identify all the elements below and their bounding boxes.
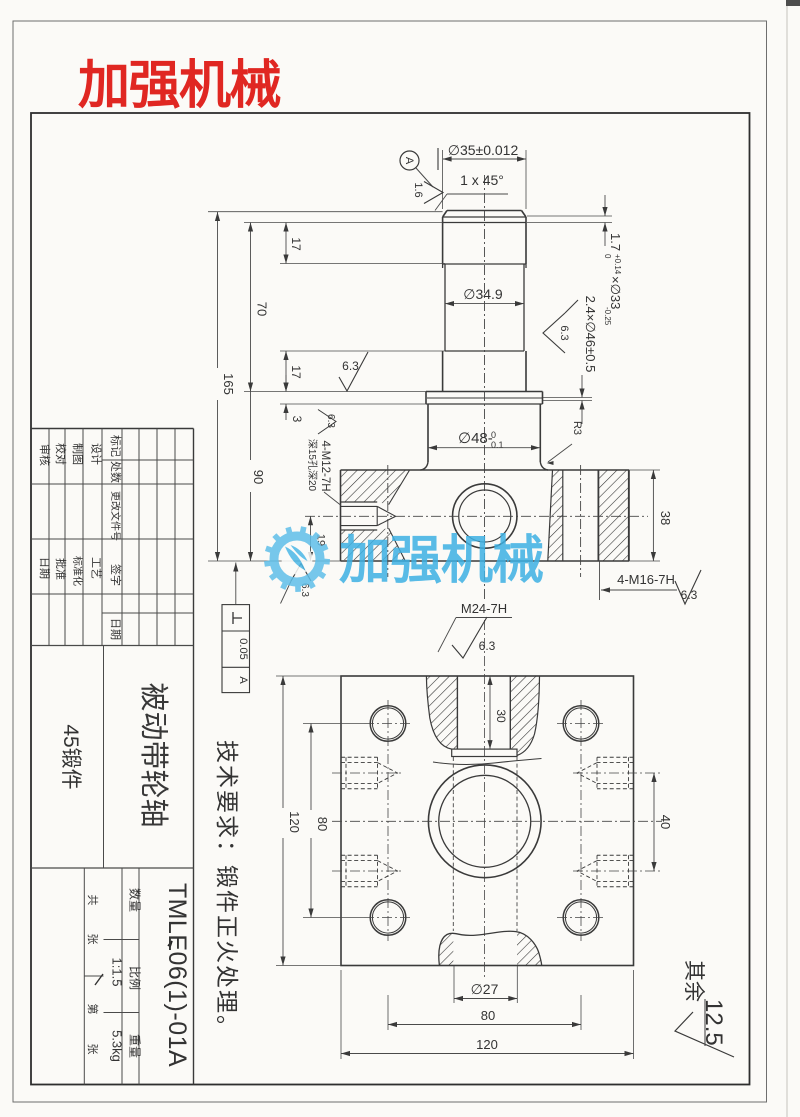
svg-text:1:1.5: 1:1.5: [110, 958, 125, 987]
svg-text:校对: 校对: [54, 443, 68, 465]
svg-text:共: 共: [86, 895, 99, 906]
svg-text:A: A: [403, 157, 415, 165]
svg-text:6.3: 6.3: [342, 359, 359, 373]
svg-text:标准化: 标准化: [71, 556, 84, 586]
svg-text:4-M16-7H: 4-M16-7H: [617, 572, 675, 587]
svg-text:90: 90: [251, 470, 266, 484]
svg-text:重量: 重量: [128, 1034, 142, 1058]
svg-text:1 x 45°: 1 x 45°: [460, 172, 504, 188]
svg-text:4-M12-7H: 4-M12-7H: [319, 440, 331, 491]
svg-text:0.1: 0.1: [491, 440, 504, 450]
svg-text:其余: 其余: [682, 960, 705, 1002]
svg-text:深15孔深20: 深15孔深20: [306, 439, 318, 492]
svg-text:制图: 制图: [71, 443, 84, 465]
svg-text:45锻件: 45锻件: [59, 724, 82, 789]
svg-text:5.3kg: 5.3kg: [110, 1030, 125, 1062]
svg-text:A: A: [237, 676, 249, 684]
svg-text:批准: 批准: [54, 558, 68, 580]
svg-text:3: 3: [290, 416, 304, 423]
svg-text:-0.25: -0.25: [603, 307, 612, 326]
svg-text:2.4×∅46±0.5: 2.4×∅46±0.5: [583, 296, 598, 373]
svg-text:比例: 比例: [128, 966, 142, 990]
svg-text:审核: 审核: [38, 444, 52, 466]
svg-text:R3: R3: [571, 421, 583, 435]
svg-text:6.3: 6.3: [681, 588, 698, 602]
svg-text:0: 0: [603, 254, 612, 259]
svg-text:被动带轮轴: 被动带轮轴: [137, 682, 170, 827]
svg-text:38: 38: [658, 511, 673, 525]
svg-text:0.05: 0.05: [237, 638, 249, 659]
svg-text:+0.14: +0.14: [613, 254, 622, 275]
svg-text:120: 120: [287, 811, 302, 833]
svg-text:M24-7H: M24-7H: [461, 601, 507, 616]
svg-text:张: 张: [86, 1044, 99, 1055]
svg-text:×∅33: ×∅33: [608, 276, 623, 309]
svg-text:6.3: 6.3: [479, 639, 496, 653]
svg-text:6.3: 6.3: [558, 325, 570, 340]
svg-text:TMLE06(1)-01A: TMLE06(1)-01A: [163, 883, 191, 1067]
svg-text:1.7: 1.7: [608, 233, 623, 251]
svg-text:17: 17: [289, 365, 303, 379]
svg-text:张: 张: [86, 934, 99, 945]
svg-text:处数: 处数: [109, 461, 122, 483]
svg-text:165: 165: [221, 373, 236, 395]
svg-text:签字: 签字: [109, 564, 123, 586]
svg-text:40: 40: [658, 815, 673, 829]
svg-text:数量: 数量: [128, 888, 143, 912]
svg-text:17: 17: [289, 237, 303, 251]
svg-text:工艺: 工艺: [90, 557, 103, 579]
svg-text:设计: 设计: [90, 443, 103, 465]
svg-text:更改文件号: 更改文件号: [109, 491, 122, 541]
svg-text:∅27: ∅27: [471, 981, 499, 997]
svg-text:120: 120: [476, 1037, 498, 1052]
svg-text:日期: 日期: [109, 618, 122, 640]
svg-text:∅48-: ∅48-: [458, 430, 493, 447]
svg-text:0: 0: [491, 430, 496, 440]
svg-text:6.3: 6.3: [325, 414, 336, 428]
svg-text:12.5: 12.5: [700, 999, 727, 1046]
svg-text:加强机械: 加强机械: [78, 57, 281, 115]
svg-text:∅34.9: ∅34.9: [463, 286, 503, 302]
svg-text:∅35±0.012: ∅35±0.012: [448, 142, 519, 158]
svg-text:日期: 日期: [38, 557, 51, 579]
svg-text:80: 80: [481, 1008, 495, 1023]
svg-text:30: 30: [494, 709, 508, 723]
svg-text:第: 第: [86, 1004, 100, 1015]
svg-text:标记: 标记: [109, 435, 123, 457]
svg-text:技术要求：锻件正火处理。: 技术要求：锻件正火处理。: [214, 740, 240, 1040]
svg-text:70: 70: [255, 302, 270, 316]
svg-text:1.6: 1.6: [412, 182, 424, 197]
svg-text:加强机械: 加强机械: [339, 532, 543, 590]
svg-text:80: 80: [315, 817, 330, 831]
